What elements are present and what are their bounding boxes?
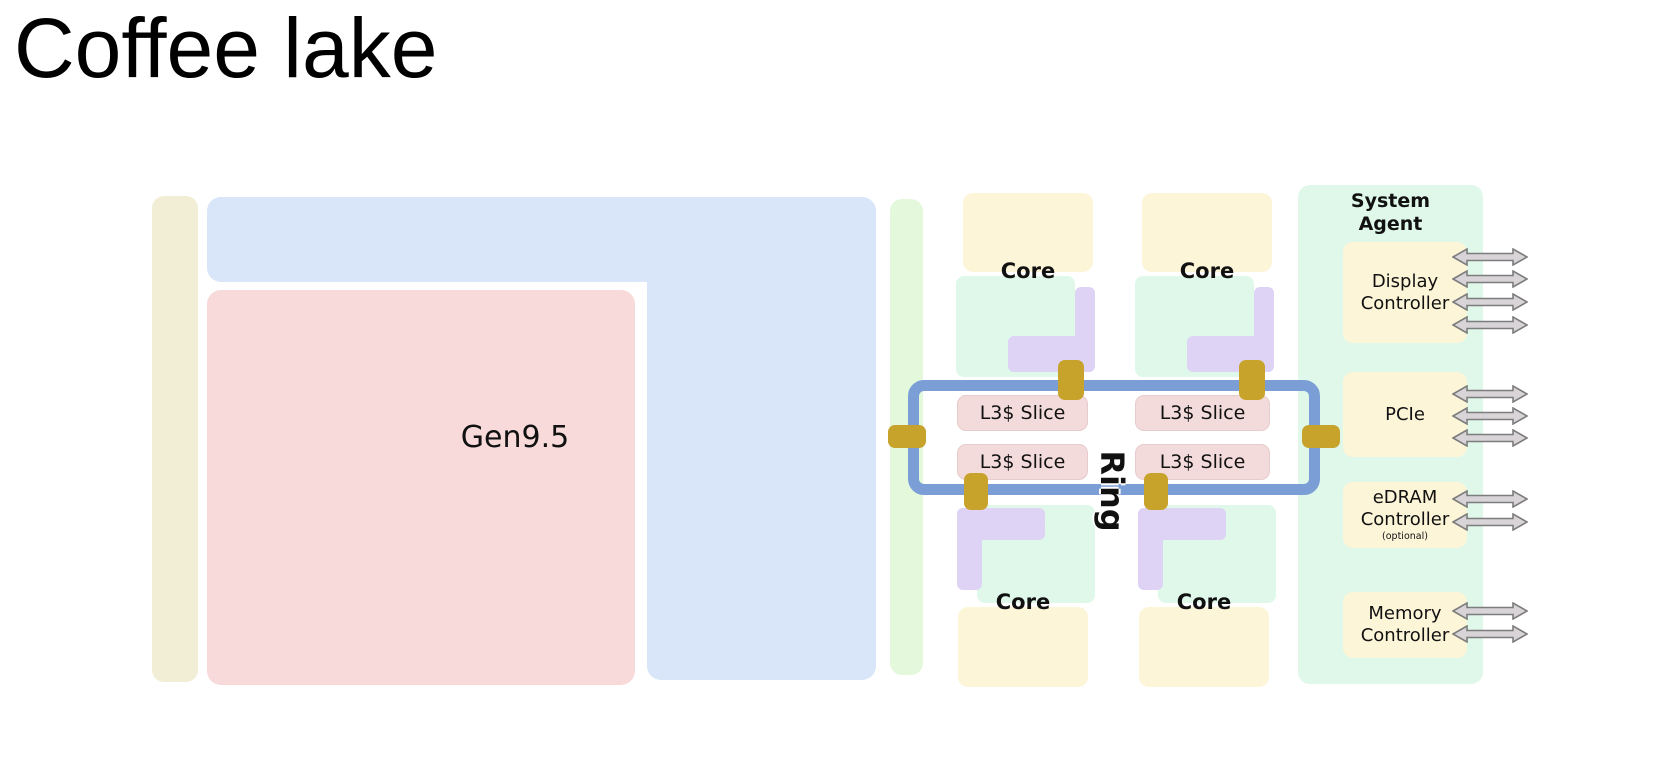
l3-slice-label: L3$ Slice [980, 451, 1066, 473]
memory-controller-block: Memory Controller [1343, 592, 1467, 658]
bidirectional-arrow-icon [1452, 429, 1528, 447]
system-agent-title: System Agent [1298, 190, 1483, 236]
l3-slice-label: L3$ Slice [1160, 402, 1246, 424]
slide-canvas: Coffee lake Gen9.5 System Agent Display … [0, 0, 1658, 784]
core-uncore-strip [1138, 508, 1226, 540]
l3-slice-block: L3$ Slice [957, 395, 1088, 431]
gpu-gen9-label: Gen9.5 [415, 423, 615, 453]
bidirectional-arrow-icon [1452, 602, 1528, 620]
page-title: Coffee lake [14, 6, 437, 90]
ring-stop-connector [1239, 360, 1265, 400]
pcie-block: PCIe [1343, 372, 1467, 457]
gpu-gen9-block [207, 290, 635, 685]
core-label: Core [963, 261, 1093, 282]
core-block [1139, 607, 1269, 687]
core-label: Core [1139, 592, 1269, 613]
display-controller-block: Display Controller [1343, 242, 1467, 343]
l3-slice-block: L3$ Slice [1135, 395, 1270, 431]
l3-slice-label: L3$ Slice [1160, 451, 1246, 473]
bidirectional-arrow-icon [1452, 513, 1528, 531]
l3-slice-label: L3$ Slice [980, 402, 1066, 424]
ring-stop-connector [964, 473, 988, 510]
bidirectional-arrow-icon [1452, 316, 1528, 334]
bidirectional-arrow-icon [1452, 248, 1528, 266]
ring-stop-connector [888, 425, 926, 448]
left-io-bar [152, 196, 198, 682]
bidirectional-arrow-icon [1452, 407, 1528, 425]
bidirectional-arrow-icon [1452, 293, 1528, 311]
bidirectional-arrow-icon [1452, 385, 1528, 403]
pcie-label: PCIe [1385, 404, 1425, 426]
core-block [958, 607, 1088, 687]
ring-stop-connector [1144, 473, 1168, 510]
ring-stop-connector [1058, 360, 1084, 400]
edram-controller-block: eDRAM Controller (optional) [1343, 482, 1467, 548]
ring-label: Ring [1096, 450, 1128, 531]
edram-optional-note: (optional) [1382, 531, 1428, 543]
core-uncore-strip [957, 508, 1045, 540]
core-label: Core [958, 592, 1088, 613]
memory-controller-label: Memory Controller [1361, 603, 1450, 647]
ring-stop-connector [1302, 425, 1340, 448]
bidirectional-arrow-icon [1452, 490, 1528, 508]
edram-controller-label: eDRAM Controller [1361, 487, 1450, 531]
gpu-region-right-column [647, 197, 876, 680]
bidirectional-arrow-icon [1452, 270, 1528, 288]
core-label: Core [1142, 261, 1272, 282]
display-controller-label: Display Controller [1361, 271, 1450, 315]
bidirectional-arrow-icon [1452, 625, 1528, 643]
